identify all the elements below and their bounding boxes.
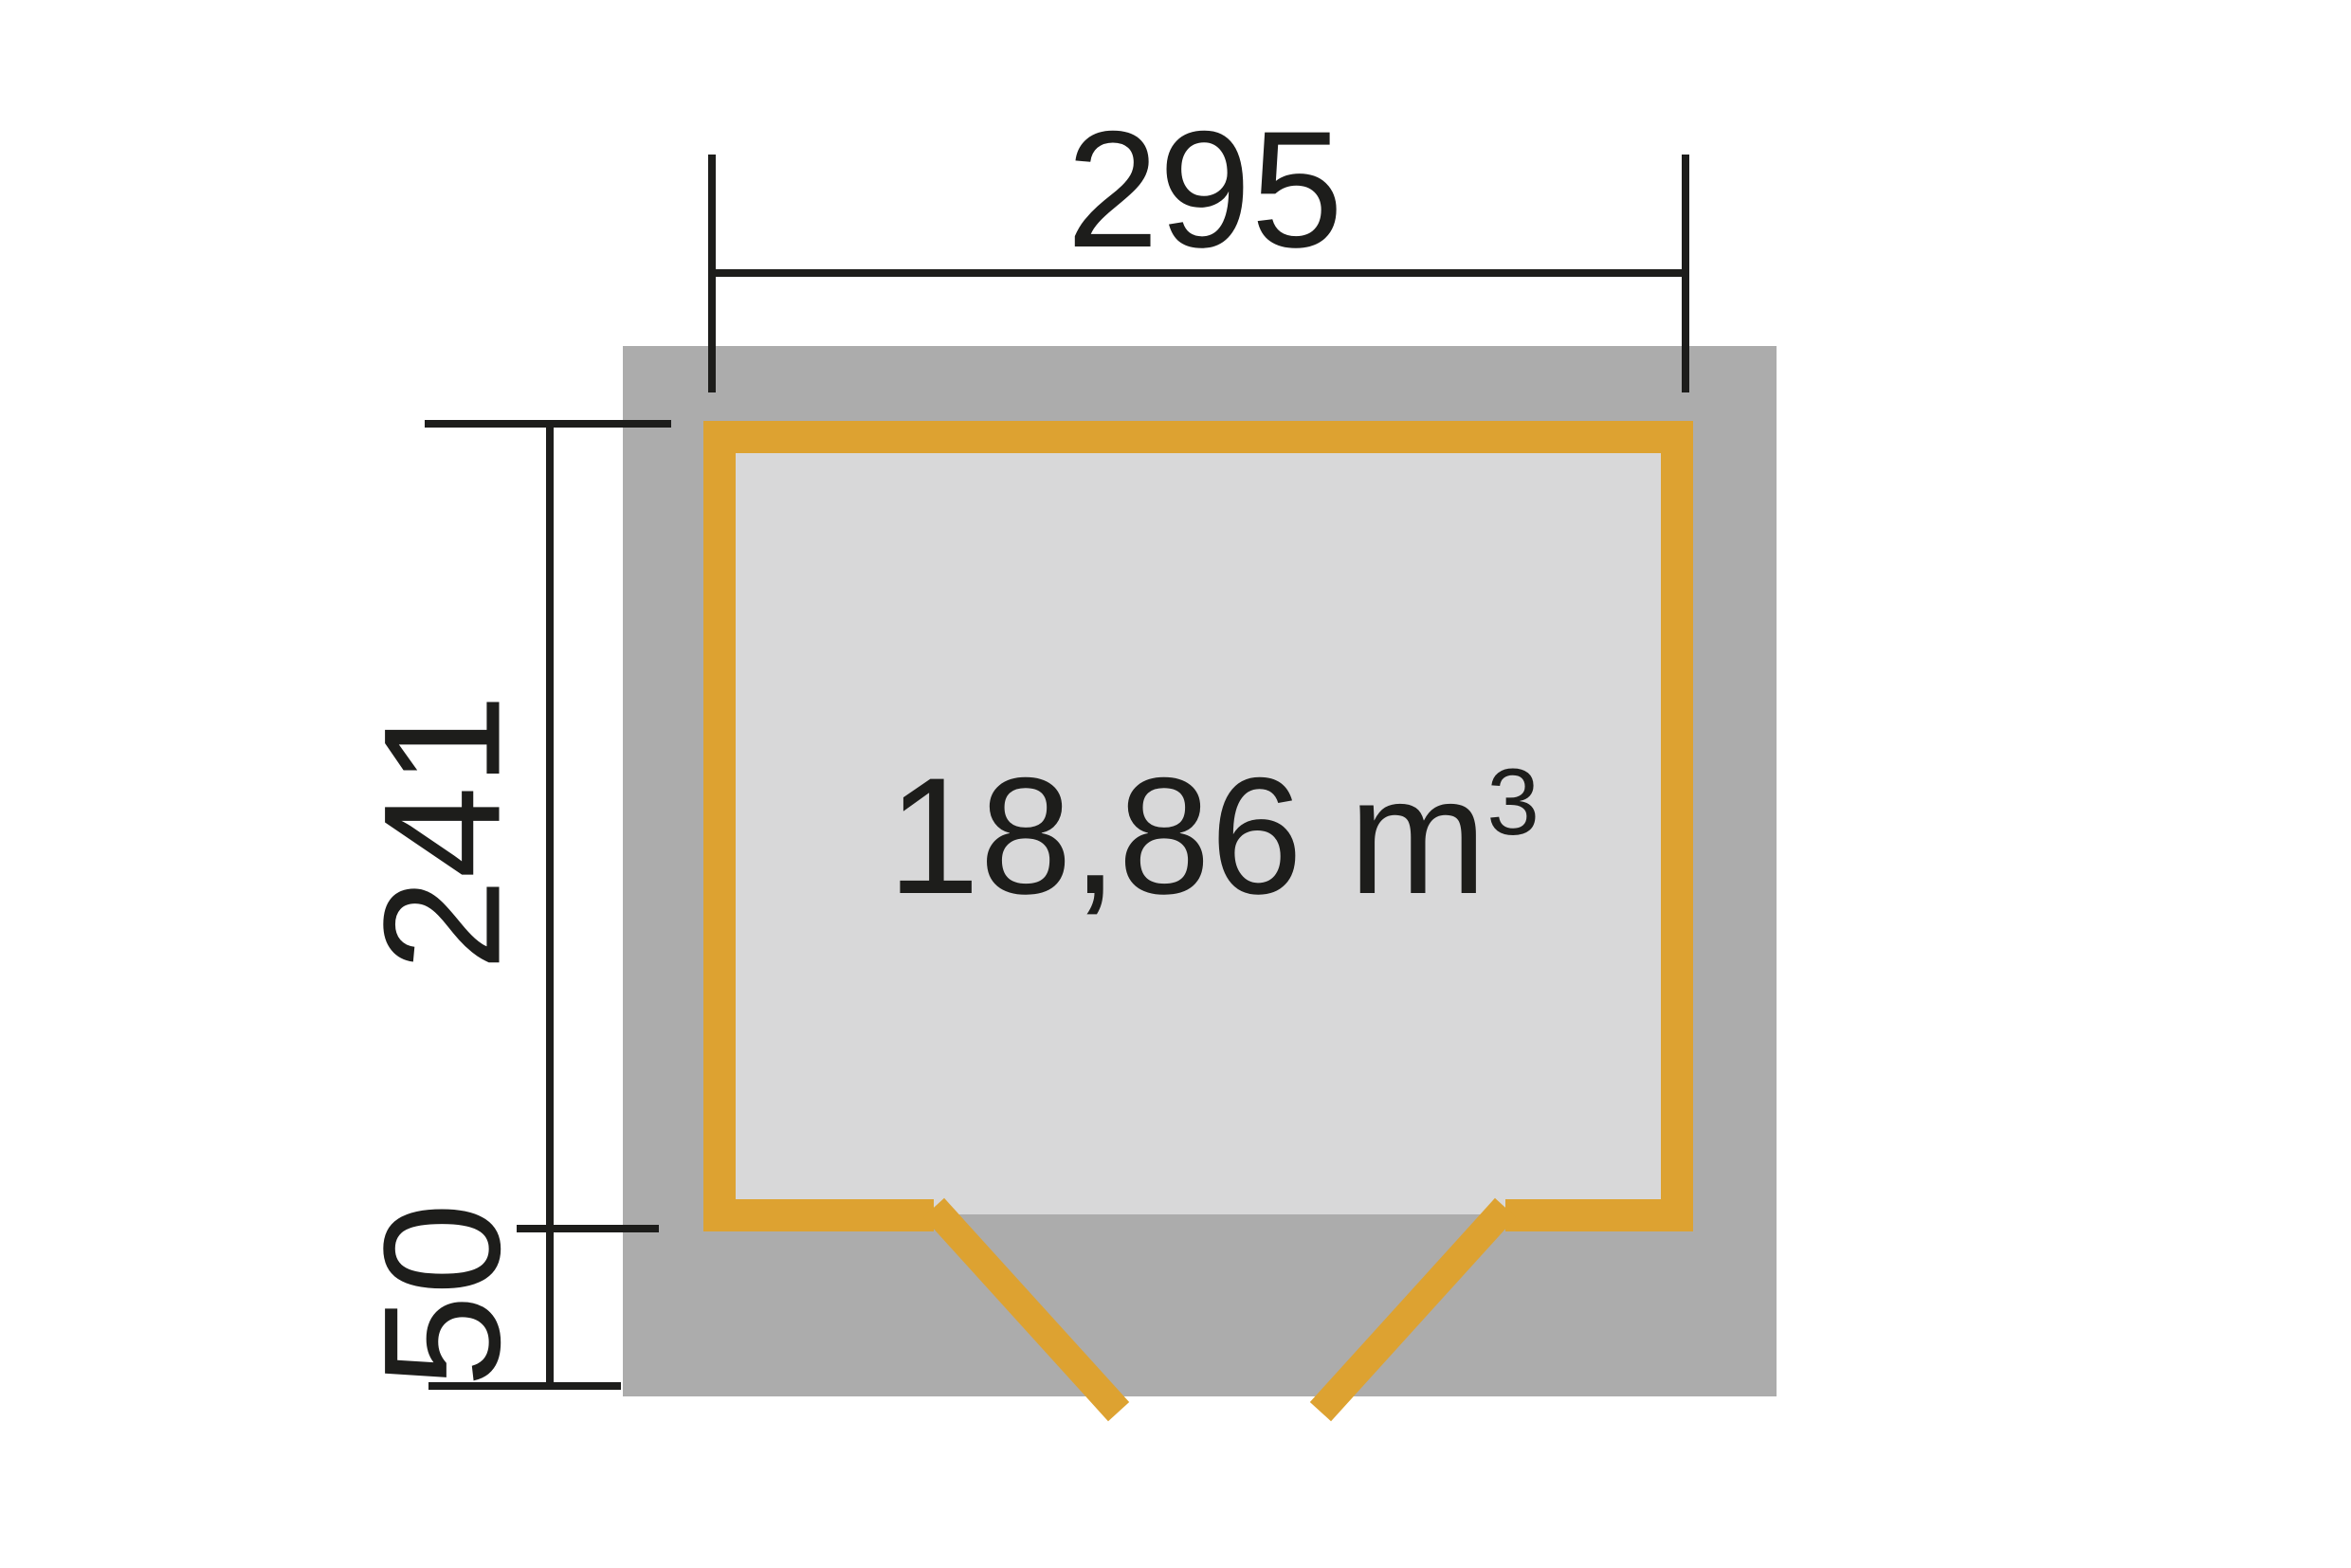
volume-exponent: 3: [1486, 750, 1539, 855]
volume-label: 18,86 m3: [834, 754, 1593, 920]
width-dimension-label: 295: [968, 107, 1442, 273]
floor-plan-diagram: 295 241 50 18,86 m3: [0, 0, 2351, 1568]
overhang-dimension-label: 50: [360, 1203, 526, 1388]
wall-left: [703, 421, 736, 1231]
wall-top: [703, 421, 1693, 453]
wall-bottom-right: [1505, 1199, 1693, 1231]
volume-value: 18,86 m: [887, 744, 1486, 929]
wall-right: [1661, 421, 1693, 1231]
wall-bottom-left: [703, 1199, 934, 1231]
depth-dimension-label: 241: [360, 694, 526, 971]
